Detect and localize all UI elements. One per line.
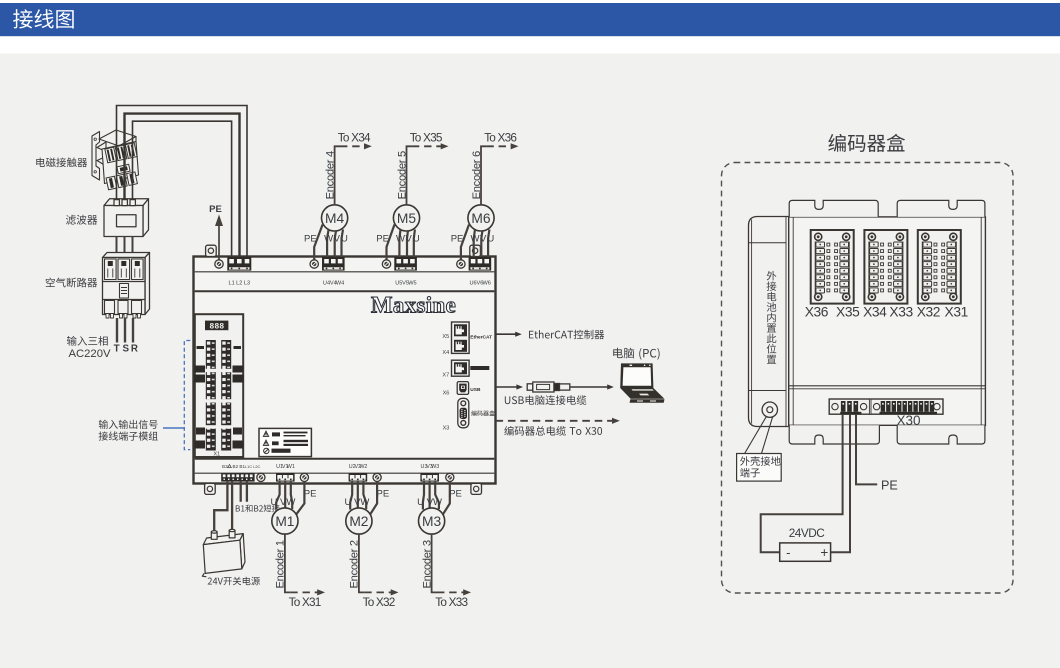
- svg-text:X4: X4: [442, 350, 449, 356]
- svg-text:U: U: [270, 497, 277, 508]
- svg-text:X5: X5: [442, 334, 449, 340]
- svg-text:M3: M3: [422, 514, 441, 529]
- svg-text:S: S: [123, 344, 130, 355]
- svg-text:X3: X3: [443, 426, 450, 432]
- svg-text:L2: L2: [236, 281, 242, 287]
- svg-text:M5: M5: [397, 211, 416, 226]
- svg-text:W: W: [360, 497, 369, 508]
- svg-text:L3: L3: [244, 281, 250, 287]
- svg-text:W5: W5: [408, 281, 416, 287]
- svg-text:M4: M4: [325, 211, 344, 226]
- svg-text:W6: W6: [483, 281, 491, 287]
- svg-text:PE: PE: [376, 234, 389, 245]
- svg-text:X7: X7: [442, 373, 449, 379]
- svg-text:To X33: To X33: [435, 595, 468, 609]
- svg-text:PE: PE: [449, 489, 462, 500]
- svg-text:R: R: [131, 344, 138, 355]
- svg-text:X31: X31: [945, 305, 968, 320]
- svg-text:PE: PE: [209, 204, 222, 215]
- svg-text:B2 B1: B2 B1: [233, 464, 246, 469]
- svg-text:M1: M1: [275, 514, 294, 529]
- svg-text:PE: PE: [304, 489, 317, 500]
- svg-text:X1: X1: [214, 452, 221, 458]
- svg-text:X30: X30: [896, 413, 920, 428]
- svg-text:W: W: [396, 234, 405, 245]
- svg-text:888: 888: [209, 323, 224, 332]
- svg-text:W: W: [286, 497, 295, 508]
- svg-text:To X35: To X35: [410, 131, 443, 145]
- svg-text:-: -: [786, 545, 790, 560]
- svg-text:EtherCAT: EtherCAT: [470, 334, 492, 340]
- svg-text:PE: PE: [451, 234, 464, 245]
- svg-text:W: W: [471, 234, 480, 245]
- svg-text:Encoder 5: Encoder 5: [396, 151, 408, 199]
- svg-text:V: V: [334, 234, 341, 245]
- svg-text:To X36: To X36: [484, 131, 517, 145]
- svg-text:Maxsine: Maxsine: [371, 292, 456, 317]
- svg-text:Encoder 4: Encoder 4: [325, 151, 337, 199]
- svg-text:PE: PE: [881, 478, 898, 492]
- svg-text:PE: PE: [304, 234, 317, 245]
- svg-text:Encoder 3: Encoder 3: [421, 540, 433, 588]
- svg-text:V: V: [480, 234, 487, 245]
- svg-text:To X32: To X32: [363, 595, 395, 609]
- svg-text:M6: M6: [471, 211, 490, 226]
- svg-text:T: T: [114, 344, 120, 355]
- svg-text:U: U: [413, 234, 420, 245]
- svg-text:U: U: [417, 497, 424, 508]
- svg-text:L1: L1: [228, 281, 234, 287]
- svg-text:X35: X35: [836, 305, 860, 320]
- svg-text:X32: X32: [917, 305, 940, 320]
- svg-text:Encoder 6: Encoder 6: [471, 151, 483, 199]
- svg-text:W3: W3: [431, 464, 439, 470]
- svg-text:Encoder 1: Encoder 1: [275, 540, 287, 588]
- svg-text:W: W: [433, 497, 442, 508]
- svg-text:+: +: [820, 545, 828, 560]
- svg-text:U: U: [344, 497, 351, 508]
- svg-text:PE: PE: [377, 489, 390, 500]
- svg-text:X36: X36: [805, 305, 829, 320]
- svg-text:USB: USB: [470, 387, 481, 393]
- svg-text:X33: X33: [889, 305, 913, 320]
- svg-text:U: U: [341, 234, 348, 245]
- svg-text:W2: W2: [359, 464, 367, 470]
- svg-text:Encoder 2: Encoder 2: [349, 540, 361, 588]
- svg-text:V: V: [406, 234, 413, 245]
- svg-text:To X31: To X31: [289, 595, 321, 609]
- svg-text:M2: M2: [349, 514, 368, 529]
- svg-text:L1C L2C: L1C L2C: [245, 464, 261, 469]
- svg-text:24VDC: 24VDC: [789, 526, 826, 540]
- svg-text:X34: X34: [863, 305, 887, 320]
- svg-text:To X34: To X34: [338, 131, 371, 145]
- svg-text:X6: X6: [443, 391, 450, 397]
- svg-text:AC220V: AC220V: [68, 348, 111, 360]
- svg-text:U: U: [487, 234, 494, 245]
- svg-text:W1: W1: [287, 464, 295, 470]
- svg-text:W: W: [324, 234, 333, 245]
- svg-text:W4: W4: [336, 281, 344, 287]
- svg-text:B3: B3: [222, 464, 228, 469]
